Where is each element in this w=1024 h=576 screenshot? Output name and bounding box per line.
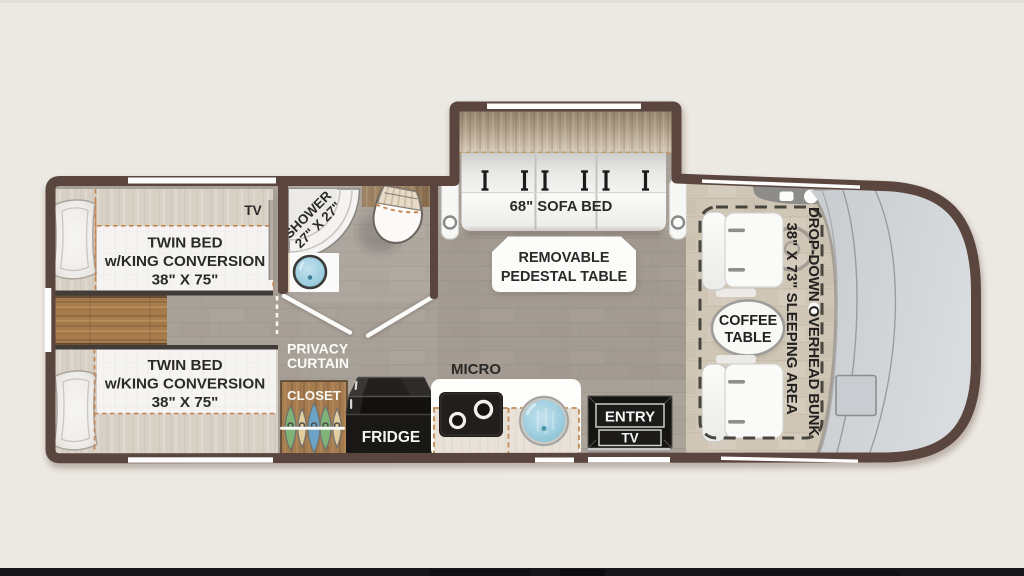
- svg-text:TWIN BED: TWIN BED: [147, 235, 222, 252]
- svg-text:MICRO: MICRO: [451, 361, 501, 378]
- svg-text:PEDESTAL TABLE: PEDESTAL TABLE: [501, 269, 628, 285]
- svg-text:DROP-DOWN OVERHEAD BUNK: DROP-DOWN OVERHEAD BUNK: [805, 207, 822, 436]
- svg-text:FRIDGE: FRIDGE: [362, 429, 421, 446]
- svg-text:38" X 75": 38" X 75": [152, 272, 219, 289]
- svg-text:TWIN BED: TWIN BED: [147, 357, 222, 374]
- svg-text:TABLE: TABLE: [725, 330, 772, 346]
- svg-text:TV: TV: [621, 431, 638, 446]
- svg-text:REMOVABLE: REMOVABLE: [519, 250, 610, 266]
- svg-text:68" SOFA BED: 68" SOFA BED: [510, 199, 613, 215]
- svg-text:w/KING CONVERSION: w/KING CONVERSION: [104, 376, 265, 393]
- svg-text:38" X 73" SLEEPING AREA: 38" X 73" SLEEPING AREA: [783, 222, 800, 414]
- svg-text:ENTRY: ENTRY: [605, 409, 655, 426]
- svg-text:CURTAIN: CURTAIN: [287, 355, 349, 371]
- svg-text:COFFEE: COFFEE: [719, 313, 778, 329]
- svg-text:38" X 75": 38" X 75": [152, 394, 219, 411]
- svg-text:w/KING CONVERSION: w/KING CONVERSION: [104, 253, 265, 270]
- svg-text:TV: TV: [244, 203, 261, 218]
- svg-text:CLOSET: CLOSET: [287, 388, 341, 403]
